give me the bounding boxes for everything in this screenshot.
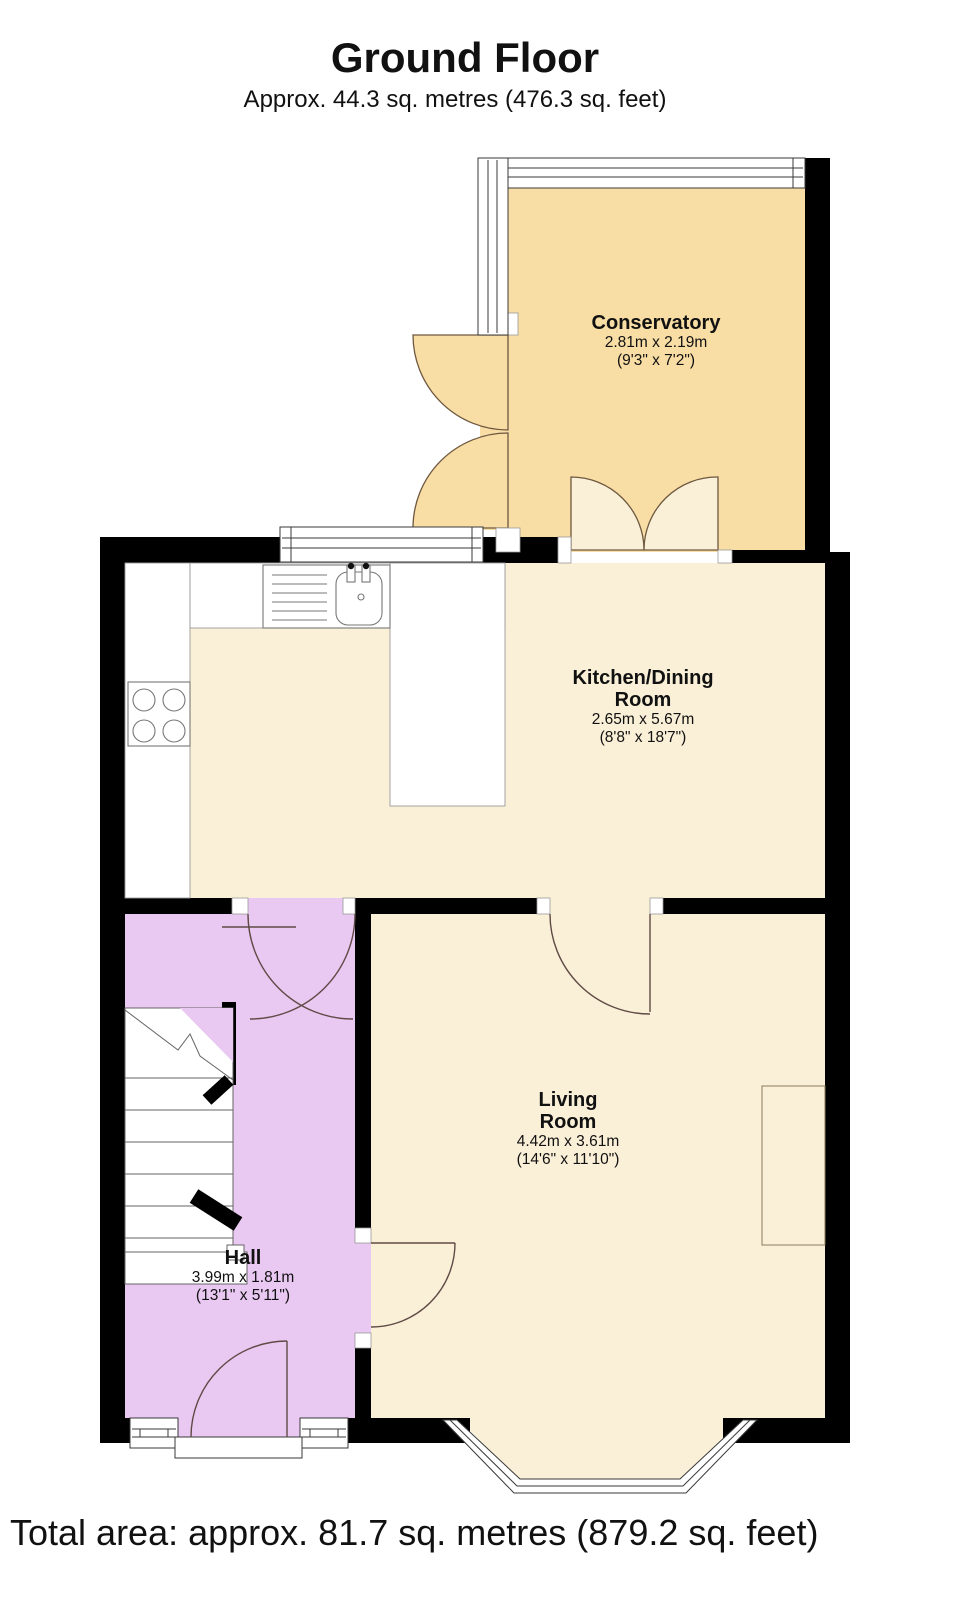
french-door-leaf-bottom [413,433,508,528]
room-size-metric: 4.42m x 3.61m [517,1133,620,1151]
floor-plan-page: Ground Floor Approx. 44.3 sq. metres (47… [0,0,958,1600]
jamb [355,1228,371,1243]
room-name: Living [517,1089,620,1111]
front-door-opening [178,1418,300,1438]
kitchen-living-wall [663,898,825,914]
tap-icon [363,563,369,569]
room-label-living-room: Living Room 4.42m x 3.61m (14'6" x 11'10… [517,1089,620,1169]
room-size-imperial: (13'1" x 5'11") [192,1287,295,1305]
total-area-text: Total area: approx. 81.7 sq. metres (879… [10,1512,818,1554]
room-name: Room [517,1111,620,1133]
hall-living-wall [355,1348,371,1418]
room-size-imperial: (8'8" x 18'7") [572,729,713,747]
bottom-wall-segment [348,1418,371,1443]
room-size-imperial: (9'3" x 7'2") [592,352,721,370]
tap-icon [348,563,354,569]
jamb [537,898,550,914]
left-exterior-wall [100,537,125,1443]
room-label-conservatory: Conservatory 2.81m x 2.19m (9'3" x 7'2") [592,312,721,370]
page-title: Ground Floor [331,34,599,82]
kitchen-living-door-opening [550,898,650,914]
conservatory-left-window [478,158,508,335]
chimney-breast [762,1086,825,1245]
kitchen-living-wall [355,898,537,914]
jamb [558,537,571,563]
room-name: Conservatory [592,312,721,334]
hall-living-wall [355,914,371,1228]
kitchen-window [280,527,483,562]
room-name: Hall [192,1247,295,1269]
room-name: Kitchen/Dining [572,667,713,689]
front-door-step [175,1437,302,1458]
floor-plan-drawing [0,0,958,1600]
room-size-metric: 2.65m x 5.67m [572,711,713,729]
stairs [125,1008,247,1284]
counter-peninsula [390,563,505,806]
front-door-sidelight-left [130,1418,178,1448]
hob-icon [128,682,190,746]
room-size-metric: 2.81m x 2.19m [592,334,721,352]
sink-icon [263,563,390,628]
conservatory-right-wall [805,158,830,563]
room-label-kitchen-dining: Kitchen/Dining Room 2.65m x 5.67m (8'8" … [572,667,713,747]
jamb [232,898,248,914]
kitchen-hall-wall [125,898,232,914]
kitchen-hall-door-opening [248,898,343,914]
top-wall-segment [100,537,280,563]
front-door-sidelight-right [300,1418,348,1448]
french-door-leaf-top [413,335,508,430]
top-wall-segment [483,537,558,563]
conservatory-top-window [478,158,805,188]
room-label-hall: Hall 3.99m x 1.81m (13'1" x 5'11") [192,1247,295,1305]
room-size-metric: 3.99m x 1.81m [192,1269,295,1287]
jamb [355,1333,371,1348]
page-subtitle: Approx. 44.3 sq. metres (476.3 sq. feet) [244,86,667,114]
jamb [343,898,355,914]
hall-living-door-opening [355,1243,371,1333]
bottom-wall-segment [100,1418,130,1443]
jamb [650,898,663,914]
jamb [496,528,520,552]
room-name: Room [572,689,713,711]
right-exterior-wall [825,552,850,1443]
jamb [718,550,732,563]
room-size-imperial: (14'6" x 11'10") [517,1151,620,1169]
conservatory-kitchen-wall [732,550,825,563]
